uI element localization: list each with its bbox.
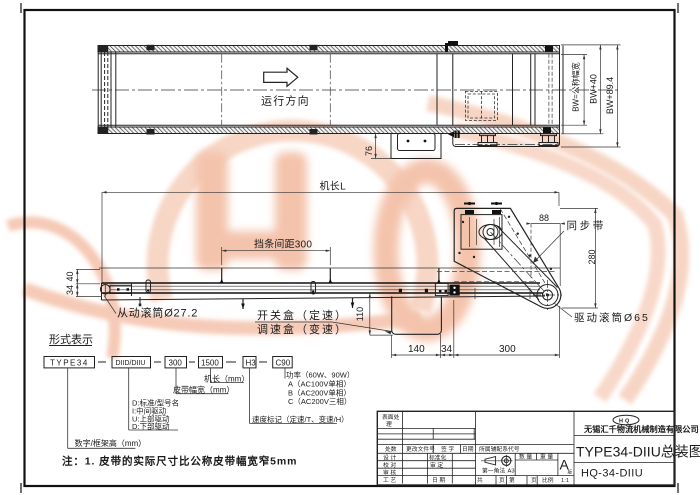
svg-text:校 对: 校 对 [383,461,396,469]
svg-text:110: 110 [355,307,365,321]
svg-text:标准化: 标准化 [429,454,447,462]
svg-text:页: 页 [531,477,537,484]
svg-text:300: 300 [169,359,183,368]
svg-text:工 艺: 工 艺 [383,476,396,484]
svg-text:140: 140 [408,344,425,355]
svg-text:C（AC200V三相）: C（AC200V三相） [288,396,351,406]
svg-text:无锡汇千物流机械制造有限公司: 无锡汇千物流机械制造有限公司 [583,424,699,434]
svg-text:HQ-34-DIIU: HQ-34-DIIU [581,468,643,480]
svg-text:理: 理 [386,421,392,428]
svg-text:功率（60W、90W）: 功率（60W、90W） [286,370,354,380]
svg-text:注：1. 皮带的实际尺寸比公称皮带幅宽窄5mm: 注：1. 皮带的实际尺寸比公称皮带幅宽窄5mm [62,455,297,468]
svg-text:280: 280 [587,249,597,264]
svg-text:版: 版 [568,469,573,476]
svg-text:DIID/DIIU: DIID/DIIU [116,360,146,367]
svg-text:第: 第 [509,476,515,484]
svg-text:34: 34 [65,285,75,295]
svg-text:1:1: 1:1 [561,478,569,484]
svg-text:数 量: 数 量 [519,453,532,461]
svg-text:BW+40: BW+40 [589,74,599,104]
svg-text:页: 页 [499,477,505,484]
svg-text:BW+89.4: BW+89.4 [605,77,615,114]
svg-text:签 字: 签 字 [441,445,454,453]
svg-text:驱动滚筒Ø65: 驱动滚筒Ø65 [574,311,650,324]
svg-text:机长（mm）: 机长（mm） [204,374,249,384]
svg-text:40: 40 [65,271,75,281]
svg-text:D:下部驱动: D:下部驱动 [132,421,170,431]
svg-text:所属辅配系代号: 所属辅配系代号 [479,445,520,453]
svg-text:300: 300 [499,344,516,355]
svg-text:A3: A3 [508,469,515,475]
svg-text:更改文件号: 更改文件号 [406,445,435,453]
svg-text:BW=公称幅宽: BW=公称幅宽 [571,62,581,112]
svg-text:C90: C90 [276,359,291,368]
svg-text:34: 34 [441,344,453,355]
svg-text:审 核: 审 核 [383,469,396,477]
svg-text:挡条间距300: 挡条间距300 [254,237,312,250]
svg-text:设 计: 设 计 [383,454,396,462]
svg-text:TYPE34-DIIU总装图: TYPE34-DIIU总装图 [576,444,700,460]
svg-text:日 期: 日 期 [432,477,445,484]
svg-text:皮带幅宽（mm）: 皮带幅宽（mm） [173,385,234,395]
svg-text:机长L: 机长L [320,180,347,193]
svg-text:共: 共 [477,476,483,484]
svg-text:TYPE34: TYPE34 [50,359,89,368]
svg-text:日期: 日期 [462,446,474,453]
svg-text:审 定: 审 定 [430,461,443,469]
svg-text:开关盒（定速）: 开关盒（定速） [257,308,348,322]
svg-text:形式表示: 形式表示 [49,332,93,346]
svg-text:调速盒（变速）: 调速盒（变速） [257,322,348,336]
svg-text:H3: H3 [246,359,257,368]
svg-text:从动滚筒Ø27.2: 从动滚筒Ø27.2 [117,306,198,320]
svg-text:数字/框架高（mm）: 数字/框架高（mm） [75,438,147,448]
svg-text:速度标记（定速/T、变速/H）: 速度标记（定速/T、变速/H） [252,414,349,424]
svg-text:1500: 1500 [201,359,219,368]
svg-text:比例: 比例 [542,476,554,484]
svg-text:第一角法: 第一角法 [482,467,505,475]
svg-text:76: 76 [364,146,374,156]
svg-text:B（AC200V单相）: B（AC200V单相） [288,387,351,397]
svg-text:处数: 处数 [385,445,397,453]
svg-text:表面处: 表面处 [382,413,400,421]
svg-text:重 量: 重 量 [540,453,553,461]
svg-text:同步带: 同步带 [567,220,606,232]
svg-text:运行方向: 运行方向 [261,94,310,108]
svg-text:A（AC100V单相）: A（AC100V单相） [288,379,351,389]
svg-text:88: 88 [539,213,549,223]
svg-text:HQ: HQ [619,419,631,425]
